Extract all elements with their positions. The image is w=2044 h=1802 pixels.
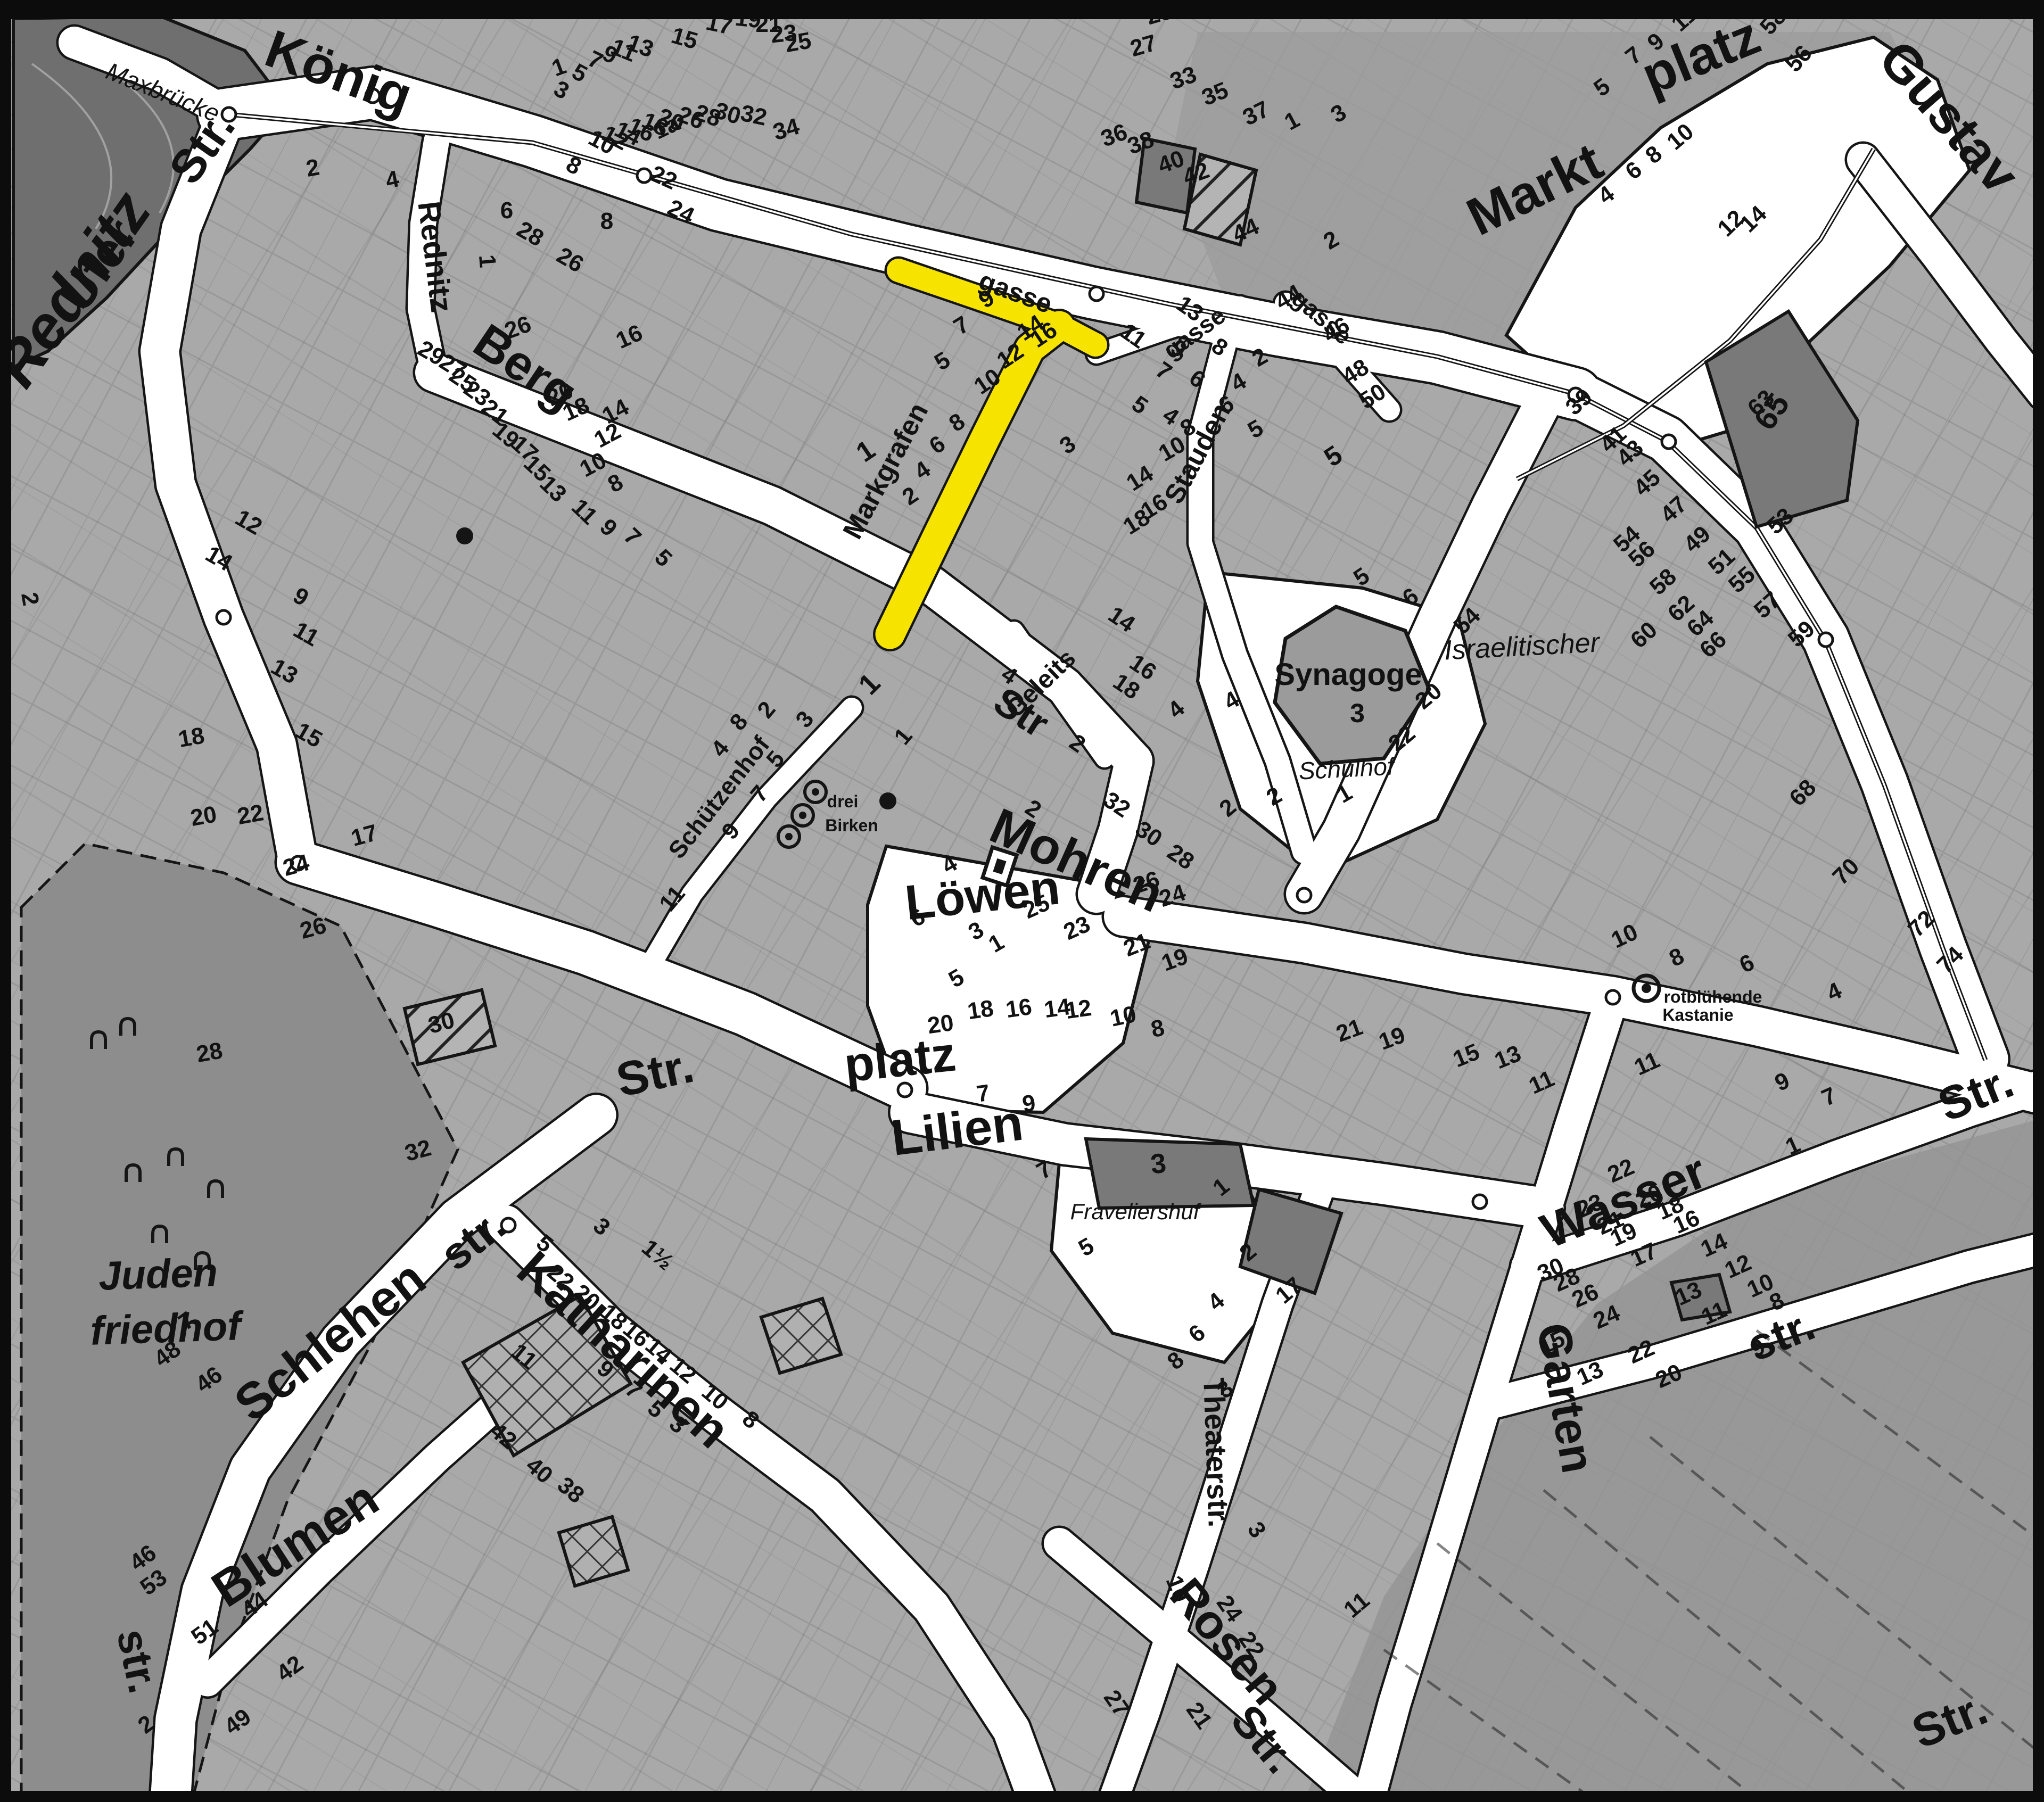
street-label-synagoge: Synagoge	[1274, 657, 1422, 692]
house-number: 12	[1064, 995, 1093, 1024]
street-node	[1606, 990, 1620, 1004]
street-node	[217, 610, 230, 624]
house-number: 20	[188, 801, 219, 831]
house-number: 20	[926, 1010, 955, 1039]
birch-tree-icon	[799, 812, 806, 819]
street-label-birken: Birken	[825, 816, 878, 835]
birch-tree-icon	[785, 833, 793, 840]
street-label-kastanie: Kastanie	[1662, 1005, 1733, 1024]
house-number: 1	[474, 253, 501, 269]
house-number: 32	[738, 100, 769, 131]
house-number: 25	[783, 27, 813, 57]
chestnut-tree-icon	[1642, 983, 1651, 993]
house-number: 8	[600, 208, 613, 234]
house-number: 16	[1004, 994, 1033, 1023]
city-map: MaxbrückeKönigRednitzUferStr.RednitzBerg…	[0, 0, 2044, 1802]
house-number: 3	[1149, 1148, 1168, 1180]
street-label-juden: Juden	[98, 1250, 219, 1299]
house-number: 18	[966, 995, 995, 1024]
street-label-3: 3	[1350, 698, 1365, 728]
street-label-fraveliershuf: Fraveliershuf	[1070, 1199, 1202, 1224]
birch-tree-icon	[812, 788, 819, 796]
street-node	[1819, 633, 1833, 647]
house-number: 18	[176, 722, 207, 753]
street-node	[1662, 435, 1676, 449]
street-label-rotblhende: rotblühende	[1664, 987, 1762, 1006]
street-node	[1090, 287, 1103, 301]
tree-dot-icon	[879, 792, 896, 809]
street-node	[1297, 888, 1311, 902]
scan-border-top	[0, 0, 2044, 19]
street-label-schulhof: Schulhof	[1298, 752, 1397, 785]
street-label-drei: drei	[827, 792, 859, 811]
tree-dot-icon	[456, 527, 473, 544]
map-page: MaxbrückeKönigRednitzUferStr.RednitzBerg…	[0, 0, 2044, 1802]
house-number: 10	[1108, 1001, 1139, 1032]
house-number: 22	[235, 799, 266, 830]
house-number: 6	[500, 197, 513, 224]
street-node	[1473, 1195, 1487, 1209]
house-number: 28	[194, 1037, 225, 1068]
